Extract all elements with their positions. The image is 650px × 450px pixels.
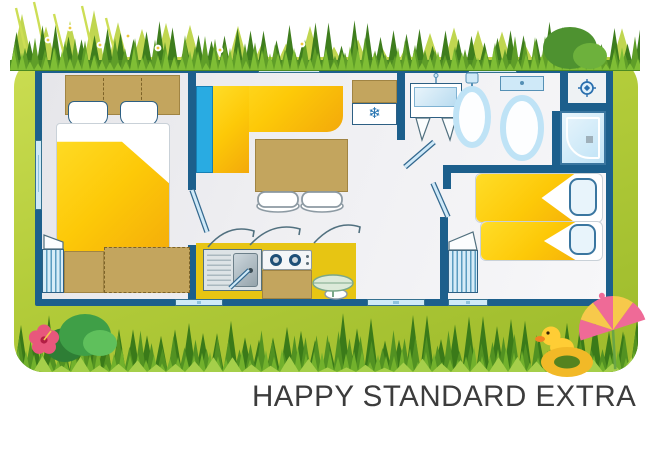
wall-shower-cubby-bottom [560, 103, 606, 111]
dashed-storage [104, 247, 190, 293]
master-cabinet [64, 251, 104, 293]
snowflake-icon: ❄ [353, 104, 396, 124]
illustration-stage: ❄ [0, 0, 650, 450]
door-bathroom [405, 142, 434, 167]
shower-tray-inner [566, 117, 600, 159]
vanity-open-door [416, 118, 430, 140]
wall-bathroom-left [397, 73, 405, 140]
bottom-door-hall [367, 299, 425, 306]
overhead-cabinet [352, 80, 397, 103]
vanity-tap [434, 74, 438, 84]
hob-cabinet [262, 270, 312, 299]
toilet [503, 81, 541, 158]
pillow [569, 224, 596, 255]
door-master [192, 190, 207, 232]
sink-unit [203, 249, 262, 291]
sink-drain [248, 268, 253, 273]
sink-bowl [233, 253, 258, 287]
shower-tray [560, 111, 606, 165]
corner-bench-side [213, 86, 249, 173]
wardrobe-lid [449, 232, 477, 250]
bottom-window-kitchen [175, 299, 223, 306]
hob-knob [306, 255, 309, 258]
bedroom2-wardrobe [448, 250, 478, 293]
grass-top-band [10, 0, 640, 74]
wall-shower-cubby-left [560, 73, 568, 103]
daisy-center [219, 49, 222, 52]
daisy-center [301, 43, 304, 46]
hob-burner [270, 254, 282, 266]
daisy-center [47, 39, 50, 42]
fridge: ❄ [352, 103, 397, 125]
dining-table [255, 139, 348, 192]
shower-drain [586, 136, 593, 143]
daisy-center [69, 27, 72, 30]
pillow [569, 178, 597, 216]
master-wardrobe [42, 249, 64, 293]
wall-master-divider [188, 73, 196, 190]
wall-bedroom2-left [440, 217, 448, 299]
vanity-mirror [414, 87, 457, 107]
daisy-center [99, 44, 102, 47]
hob [262, 250, 312, 270]
wall-stub-bedroom2-door [443, 173, 451, 189]
bush-highlight [573, 43, 607, 69]
toilet-cistern [500, 76, 544, 91]
wall-bathroom-bedroom2 [443, 165, 606, 173]
counter-lid-arc [314, 225, 360, 243]
vanity [410, 83, 462, 118]
dining-chair [257, 192, 299, 212]
grass-bottom-band [14, 298, 638, 372]
dining-chair [301, 192, 343, 212]
vanity-open-door [442, 118, 456, 140]
daisy-center [157, 47, 160, 50]
sink-drainer [207, 254, 231, 286]
bench-blue-cushion [196, 86, 213, 173]
hob-knob [306, 262, 309, 265]
hob-burner [289, 254, 301, 266]
floorplan: ❄ [35, 66, 613, 306]
plan-title: HAPPY STANDARD EXTRA [252, 380, 636, 414]
shower-cubby [568, 73, 606, 103]
wall-shower-tray-left [552, 111, 560, 173]
daisy-center [127, 35, 130, 38]
bottom-window-bedroom [448, 299, 488, 306]
left-window [35, 140, 42, 210]
